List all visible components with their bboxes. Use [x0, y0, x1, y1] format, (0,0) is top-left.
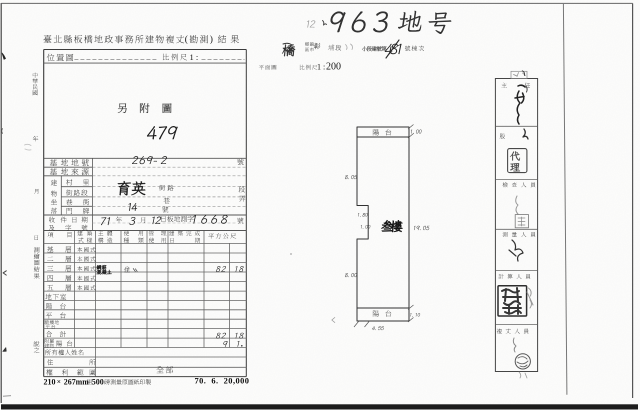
svg-text:1 :: 1 :	[317, 62, 325, 71]
svg-text:(: (	[185, 34, 188, 45]
svg-text:200: 200	[326, 62, 341, 73]
svg-text:210: 210	[44, 377, 56, 386]
svg-text:): )	[210, 34, 213, 45]
svg-text:267mm: 267mm	[64, 377, 89, 386]
svg-text:×: ×	[57, 377, 61, 386]
svg-text:1 :: 1 :	[190, 52, 199, 62]
svg-text:500: 500	[92, 377, 104, 386]
svg-text:70. 6. 20,000: 70. 6. 20,000	[195, 376, 250, 385]
